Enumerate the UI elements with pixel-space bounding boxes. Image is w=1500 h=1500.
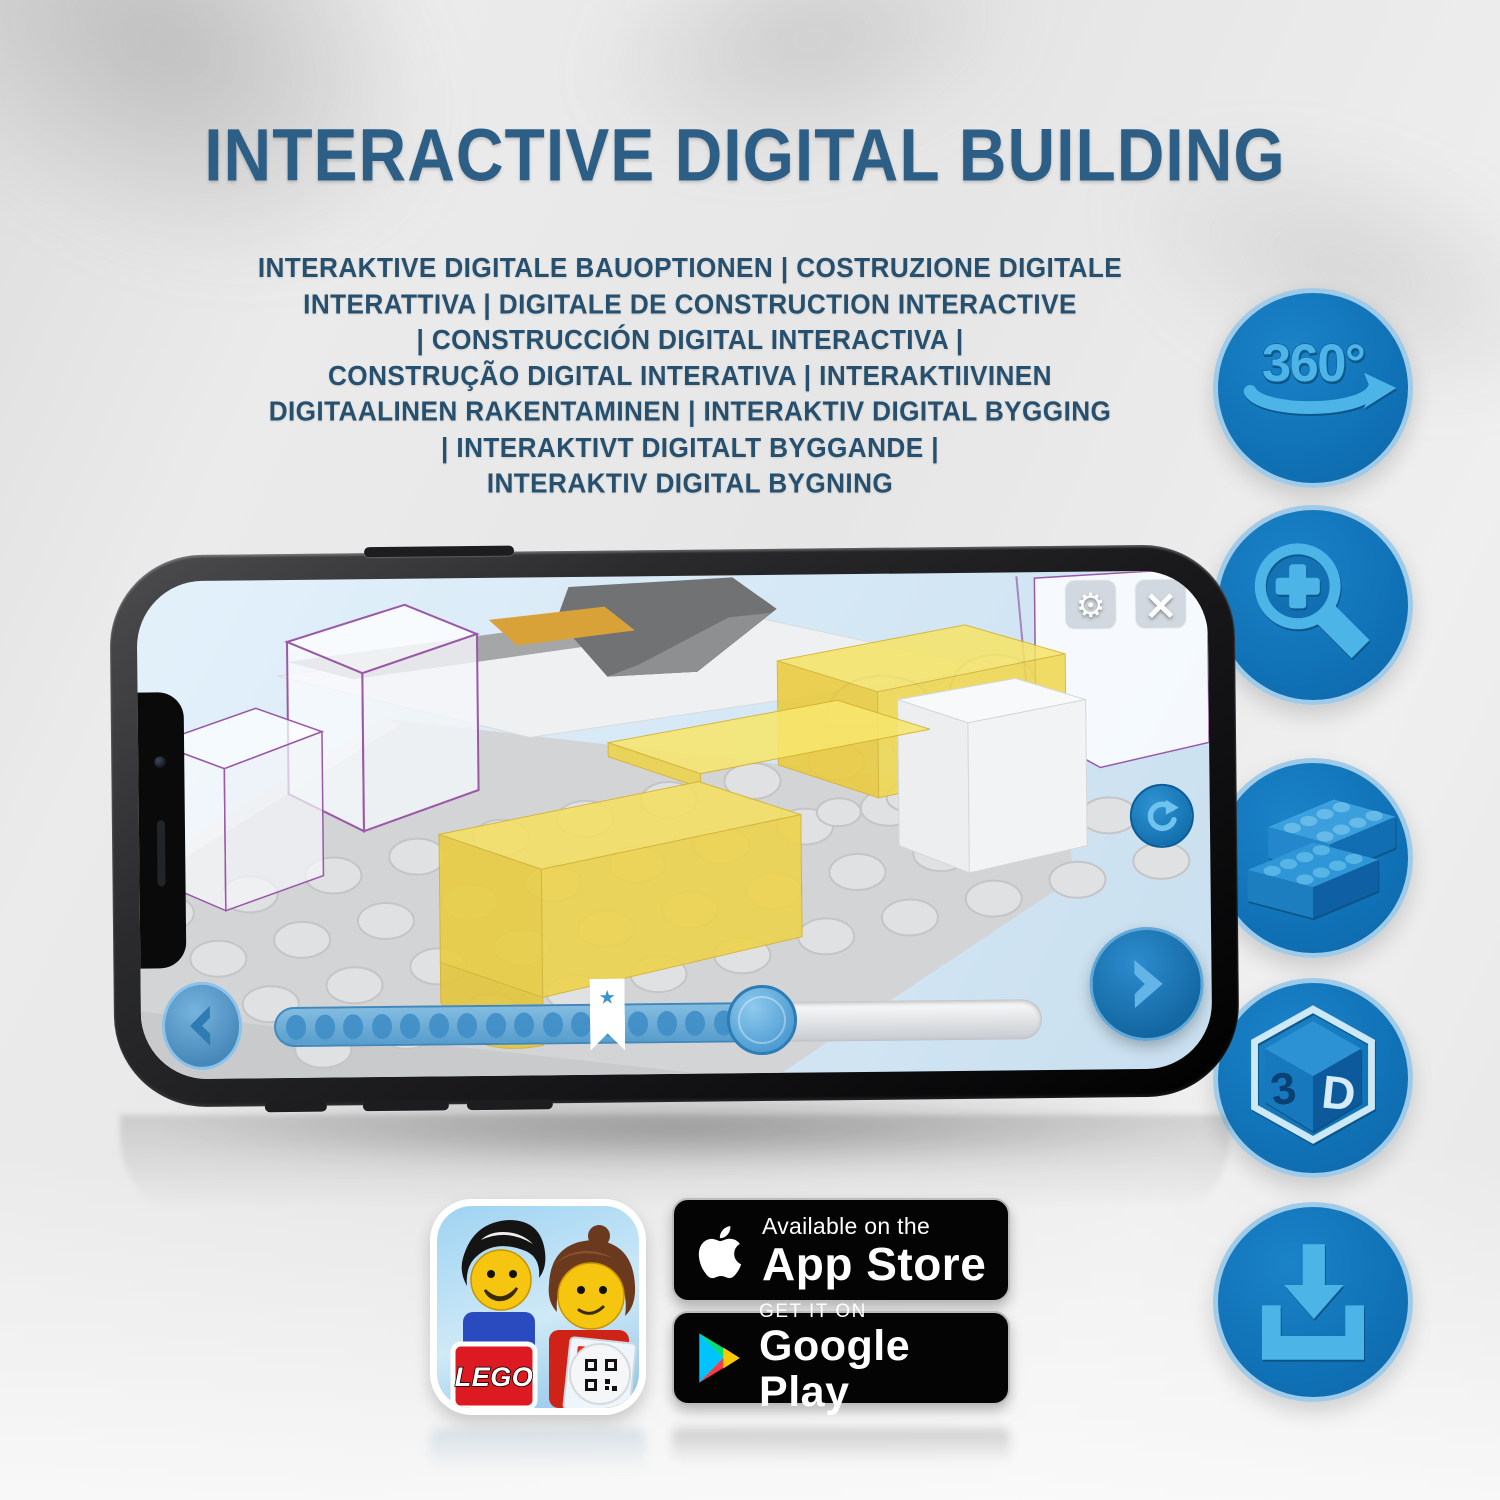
next-step-button[interactable] — [1089, 926, 1204, 1041]
cube-d-label: D — [1319, 1065, 1358, 1120]
rotate-icon — [1142, 796, 1182, 836]
lego-brick-icon — [1227, 772, 1399, 944]
phone-mute-switch — [265, 1102, 327, 1113]
slider-step-dot — [286, 1015, 306, 1040]
white-brick-box — [897, 678, 1087, 874]
feature-zoom — [1213, 505, 1413, 705]
feature-360-rotation: 360° — [1213, 288, 1413, 488]
360-label: 360° — [1262, 334, 1364, 393]
subtitle-line: | INTERAKTIVT DIGITALT BYGGANDE | — [166, 429, 1214, 465]
slider-progress-fill — [274, 1002, 766, 1047]
phone-volume-button — [363, 1100, 449, 1111]
build-progress-slider-track[interactable] — [274, 999, 1042, 1047]
slider-step-dot — [428, 1013, 448, 1038]
subtitle-line: | CONSTRUCCIÓN DIGITAL INTERACTIVA | — [166, 322, 1214, 358]
google-play-icon — [696, 1331, 743, 1385]
app-icon-reflection — [430, 1428, 646, 1472]
earpiece-speaker — [157, 820, 166, 886]
feature-download — [1213, 1202, 1413, 1402]
slider-step-dot — [400, 1014, 420, 1039]
slider-step-dot — [314, 1015, 334, 1040]
slider-step-dot — [656, 1011, 676, 1036]
slider-step-dot — [571, 1012, 591, 1037]
lego-app-icon[interactable]: LEGO — [430, 1199, 646, 1415]
feature-brick — [1213, 758, 1413, 958]
slider-step-dot — [628, 1011, 648, 1036]
google-play-badge[interactable]: GET IT ON Google Play — [672, 1311, 1010, 1405]
lego-logo: LEGO — [453, 1344, 535, 1408]
multilingual-subtitle: INTERAKTIVE DIGITALE BAUOPTIONEN | COSTR… — [166, 250, 1214, 501]
app-store-badge[interactable]: Available on the App Store — [672, 1198, 1010, 1302]
lego-logo-text: LEGO — [455, 1362, 534, 1392]
phone: ⚙ × ★ — [109, 544, 1240, 1108]
close-icon: × — [1143, 579, 1179, 628]
slider-step-dot — [343, 1014, 363, 1039]
slider-step-dot — [457, 1013, 477, 1038]
app-store-tagline: Available on the — [762, 1213, 986, 1240]
subtitle-line: INTERAKTIVE DIGITALE BAUOPTIONEN | COSTR… — [166, 250, 1214, 286]
subtitle-line: INTERATTIVA | DIGITALE DE CONSTRUCTION I… — [166, 286, 1214, 322]
page-title: INTERACTIVE DIGITAL BUILDING — [0, 112, 1490, 197]
apple-icon — [694, 1219, 746, 1281]
rotate-reset-button[interactable] — [1130, 784, 1195, 849]
phone-power-button — [364, 546, 514, 558]
slider-step-dot — [685, 1011, 705, 1036]
slider-step-dot — [514, 1012, 534, 1037]
chevron-left-icon — [180, 1000, 225, 1052]
subtitle-line: CONSTRUÇÃO DIGITAL INTERATIVA | INTERAKT… — [166, 358, 1214, 394]
gear-icon: ⚙ — [1076, 585, 1106, 624]
slider-step-dot — [371, 1014, 391, 1039]
slider-handle[interactable] — [727, 985, 798, 1056]
google-play-name: Google Play — [759, 1323, 1008, 1415]
phone-notch — [136, 692, 186, 969]
previous-step-button[interactable] — [162, 981, 243, 1070]
subtitle-line: DIGITAALINEN RAKENTAMINEN | INTERAKTIV D… — [166, 394, 1214, 430]
close-button[interactable]: × — [1134, 579, 1187, 630]
3d-cube-icon: 3 D — [1227, 992, 1399, 1164]
google-play-tagline: GET IT ON — [759, 1301, 1008, 1323]
qr-code-badge — [570, 1344, 630, 1404]
front-camera — [154, 756, 166, 768]
feature-3d-view: 3 D — [1213, 978, 1413, 1178]
badge-reflection — [672, 1428, 1010, 1464]
360-rotation-icon: 360° — [1228, 303, 1398, 473]
settings-button[interactable]: ⚙ — [1064, 579, 1117, 630]
phone-screen: ⚙ × ★ — [136, 570, 1212, 1079]
download-icon — [1228, 1217, 1398, 1387]
app-store-name: App Store — [762, 1240, 986, 1288]
zoom-in-icon — [1228, 520, 1398, 690]
subtitle-line: INTERAKTIV DIGITAL BYGNING — [166, 465, 1214, 501]
phone-volume-button — [467, 1099, 553, 1110]
slider-step-dot — [542, 1012, 562, 1037]
slider-step-dot — [485, 1013, 505, 1038]
page: INTERACTIVE DIGITAL BUILDING INTERAKTIVE… — [0, 0, 1500, 1500]
lego-app-artwork: LEGO — [437, 1206, 639, 1408]
chevron-right-icon — [1118, 952, 1175, 1017]
